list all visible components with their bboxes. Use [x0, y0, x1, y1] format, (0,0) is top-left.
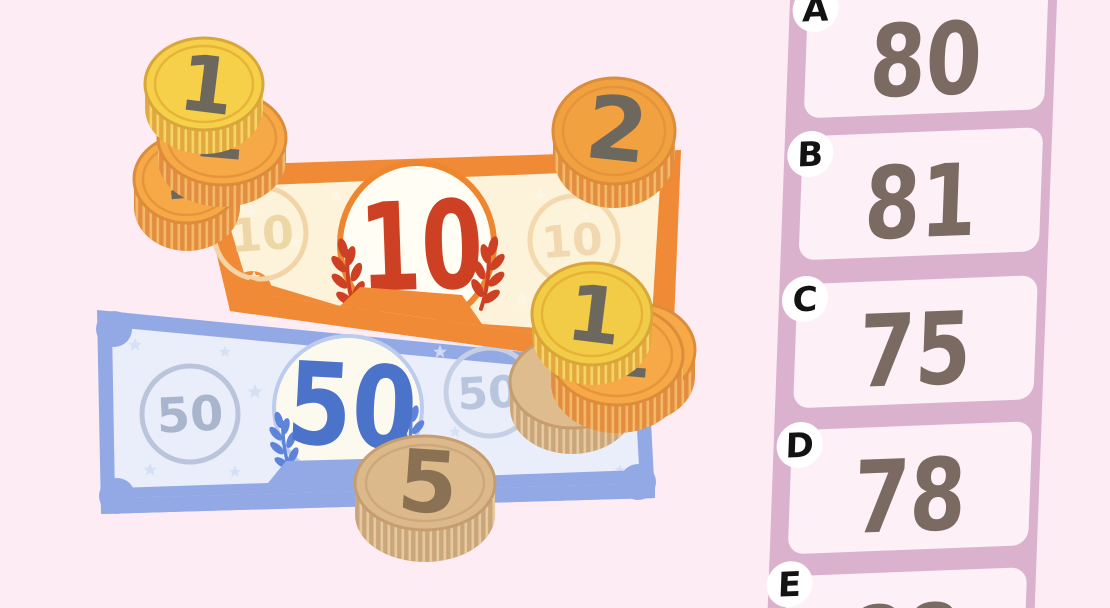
- orange-2-coin-top-right: 2: [553, 75, 675, 208]
- scene: 50 50 50: [0, 0, 1110, 608]
- watermark-10-right-value: 10: [540, 214, 605, 269]
- answer-card-a[interactable]: 80 A: [788, 0, 1048, 124]
- answer-value-c: 75: [857, 290, 973, 411]
- answer-card-b[interactable]: 81 B: [783, 122, 1043, 266]
- answer-ribbon: 80 A 81 B 75 C 78 D 88: [762, 0, 1059, 608]
- answer-letter-a: A: [802, 0, 830, 31]
- answer-letter-e: E: [777, 565, 802, 606]
- tan-5-coin: 5: [355, 431, 495, 562]
- coin-digit: 1: [562, 268, 627, 364]
- answer-card-d[interactable]: 78 D: [772, 413, 1032, 560]
- coin-digit: 5: [395, 431, 462, 535]
- answer-value-b: 81: [862, 142, 978, 263]
- answer-letter-b: B: [797, 135, 824, 176]
- answer-card-c[interactable]: 75 C: [778, 267, 1038, 414]
- gold-1-coin-right: 1: [532, 263, 652, 385]
- gold-1-coin-left: 1: [145, 38, 263, 154]
- answer-value-a: 80: [868, 0, 984, 121]
- answer-letter-c: C: [792, 280, 818, 321]
- answer-letter-d: D: [785, 426, 815, 467]
- watermark-50-left-value: 50: [155, 385, 225, 444]
- coin-digit: 1: [174, 38, 239, 134]
- game-screen: 50 50 50: [0, 0, 1110, 608]
- answer-value-d: 78: [852, 436, 968, 557]
- answer-value-e: 88: [846, 582, 962, 608]
- coin-digit: 2: [581, 75, 653, 184]
